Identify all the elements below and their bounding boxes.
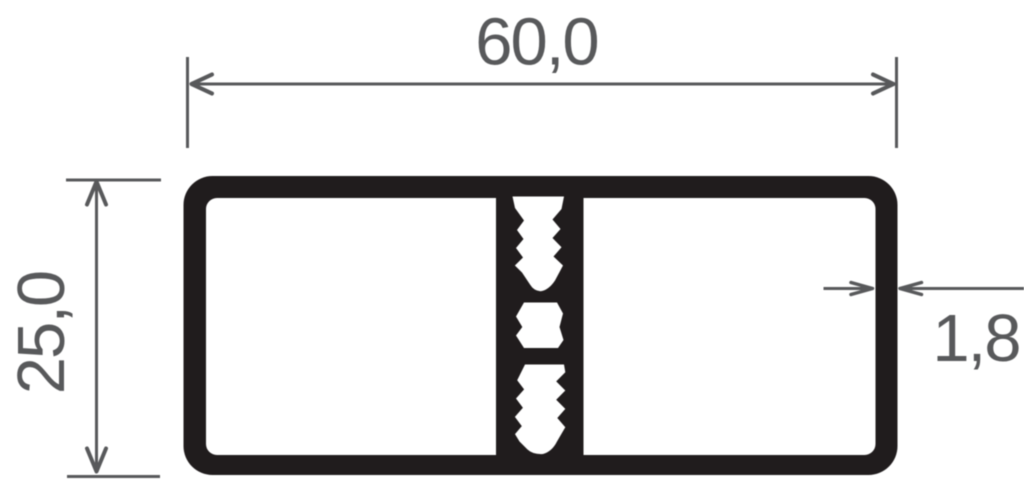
svg-text:1,8: 1,8 <box>932 301 1019 376</box>
svg-text:25,0: 25,0 <box>4 272 79 394</box>
svg-text:60,0: 60,0 <box>475 5 597 80</box>
